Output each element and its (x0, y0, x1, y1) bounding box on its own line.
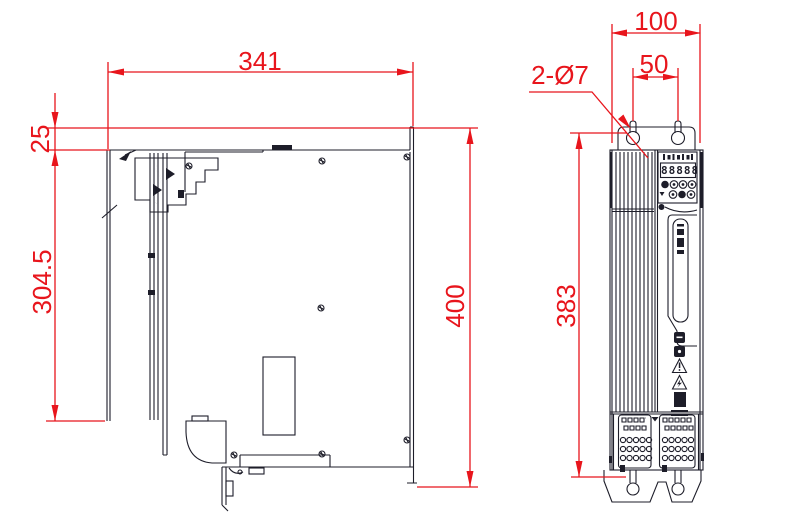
dim-side-width-label: 341 (238, 48, 281, 74)
bottom-connector-box (186, 416, 226, 463)
panel-screw (659, 204, 665, 210)
dimension-lines (45, 24, 701, 487)
rating-label (674, 392, 686, 407)
top-tab (272, 145, 292, 150)
mounting-keyhole-icon (672, 121, 685, 145)
front-view-drawing (604, 121, 704, 502)
seven-segment-readout: 88888 (661, 163, 696, 178)
dimension-arrowheads (52, 30, 702, 488)
warning-triangle-icon (673, 359, 687, 373)
mounting-clamp-section (102, 150, 218, 218)
brand-logo-marks (677, 224, 684, 254)
dim-top-offset-label: 25 (27, 125, 53, 154)
side-view-drawing (102, 127, 417, 511)
brand-logo-strip (673, 219, 688, 322)
warning-label-column (671, 332, 688, 416)
bottom-cable-bracket (222, 467, 264, 511)
heatsink-edge-lines (148, 153, 167, 455)
drawing-canvas (0, 0, 805, 516)
dim-front-width-label: 100 (634, 8, 677, 34)
status-icon-row (663, 154, 693, 160)
shock-hazard-icon (673, 376, 687, 390)
dim-hole-spacing-label: 50 (640, 51, 669, 77)
dimension-drawing: 341 25 304.5 400 100 50 2-Ø7 383 88888 (0, 0, 805, 516)
terminal-holes (620, 437, 693, 460)
dim-overall-height-label: 400 (442, 284, 468, 327)
bottom-mounting-bracket (604, 470, 703, 502)
screw-icons (186, 154, 410, 458)
dim-mounting-height-label: 383 (553, 284, 579, 327)
dim-hole-callout-label: 2-Ø7 (531, 62, 589, 88)
heatsink-fins (612, 152, 654, 412)
terminal-block (609, 414, 704, 472)
side-nameplate (263, 357, 295, 435)
keypad-buttons (660, 181, 696, 199)
dim-body-height-label: 304.5 (29, 249, 55, 314)
mounting-keyhole-icon (627, 470, 639, 495)
mounting-keyhole-icon (672, 470, 684, 495)
